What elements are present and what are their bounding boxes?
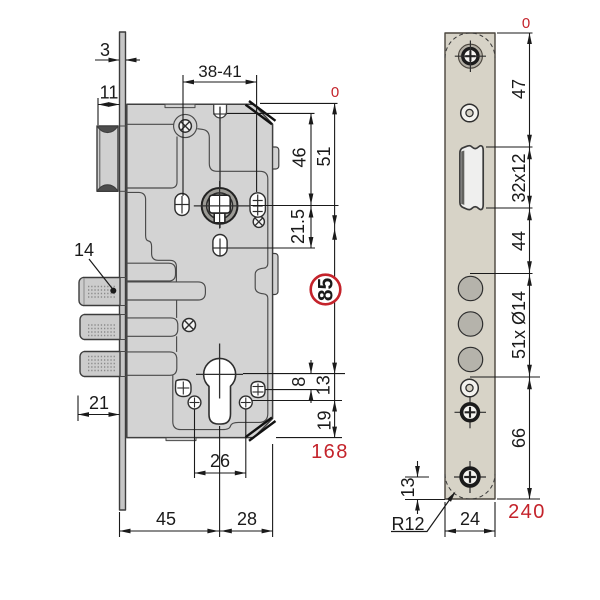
svg-text:51x Ø14: 51x Ø14 <box>509 291 529 359</box>
svg-text:21.5: 21.5 <box>288 209 308 244</box>
svg-text:28: 28 <box>237 509 257 529</box>
svg-text:45: 45 <box>156 509 176 529</box>
svg-text:24: 24 <box>460 509 480 529</box>
svg-text:13: 13 <box>313 375 333 395</box>
svg-text:0: 0 <box>331 84 339 101</box>
svg-text:19: 19 <box>314 410 334 430</box>
svg-text:46: 46 <box>289 147 309 167</box>
svg-text:32x12: 32x12 <box>509 153 529 202</box>
svg-text:21: 21 <box>89 393 109 413</box>
svg-text:47: 47 <box>509 79 529 99</box>
svg-text:66: 66 <box>509 428 529 448</box>
svg-text:44: 44 <box>509 231 529 251</box>
svg-text:0: 0 <box>522 15 530 32</box>
svg-text:168: 168 <box>311 441 349 463</box>
svg-text:8: 8 <box>289 377 309 387</box>
svg-text:51: 51 <box>314 146 334 166</box>
svg-text:38-41: 38-41 <box>198 62 241 81</box>
svg-text:85: 85 <box>315 278 338 302</box>
svg-text:11: 11 <box>100 83 119 103</box>
svg-text:240: 240 <box>508 501 546 523</box>
svg-text:3: 3 <box>100 40 110 60</box>
svg-text:13: 13 <box>398 477 418 497</box>
svg-text:14: 14 <box>74 240 94 260</box>
